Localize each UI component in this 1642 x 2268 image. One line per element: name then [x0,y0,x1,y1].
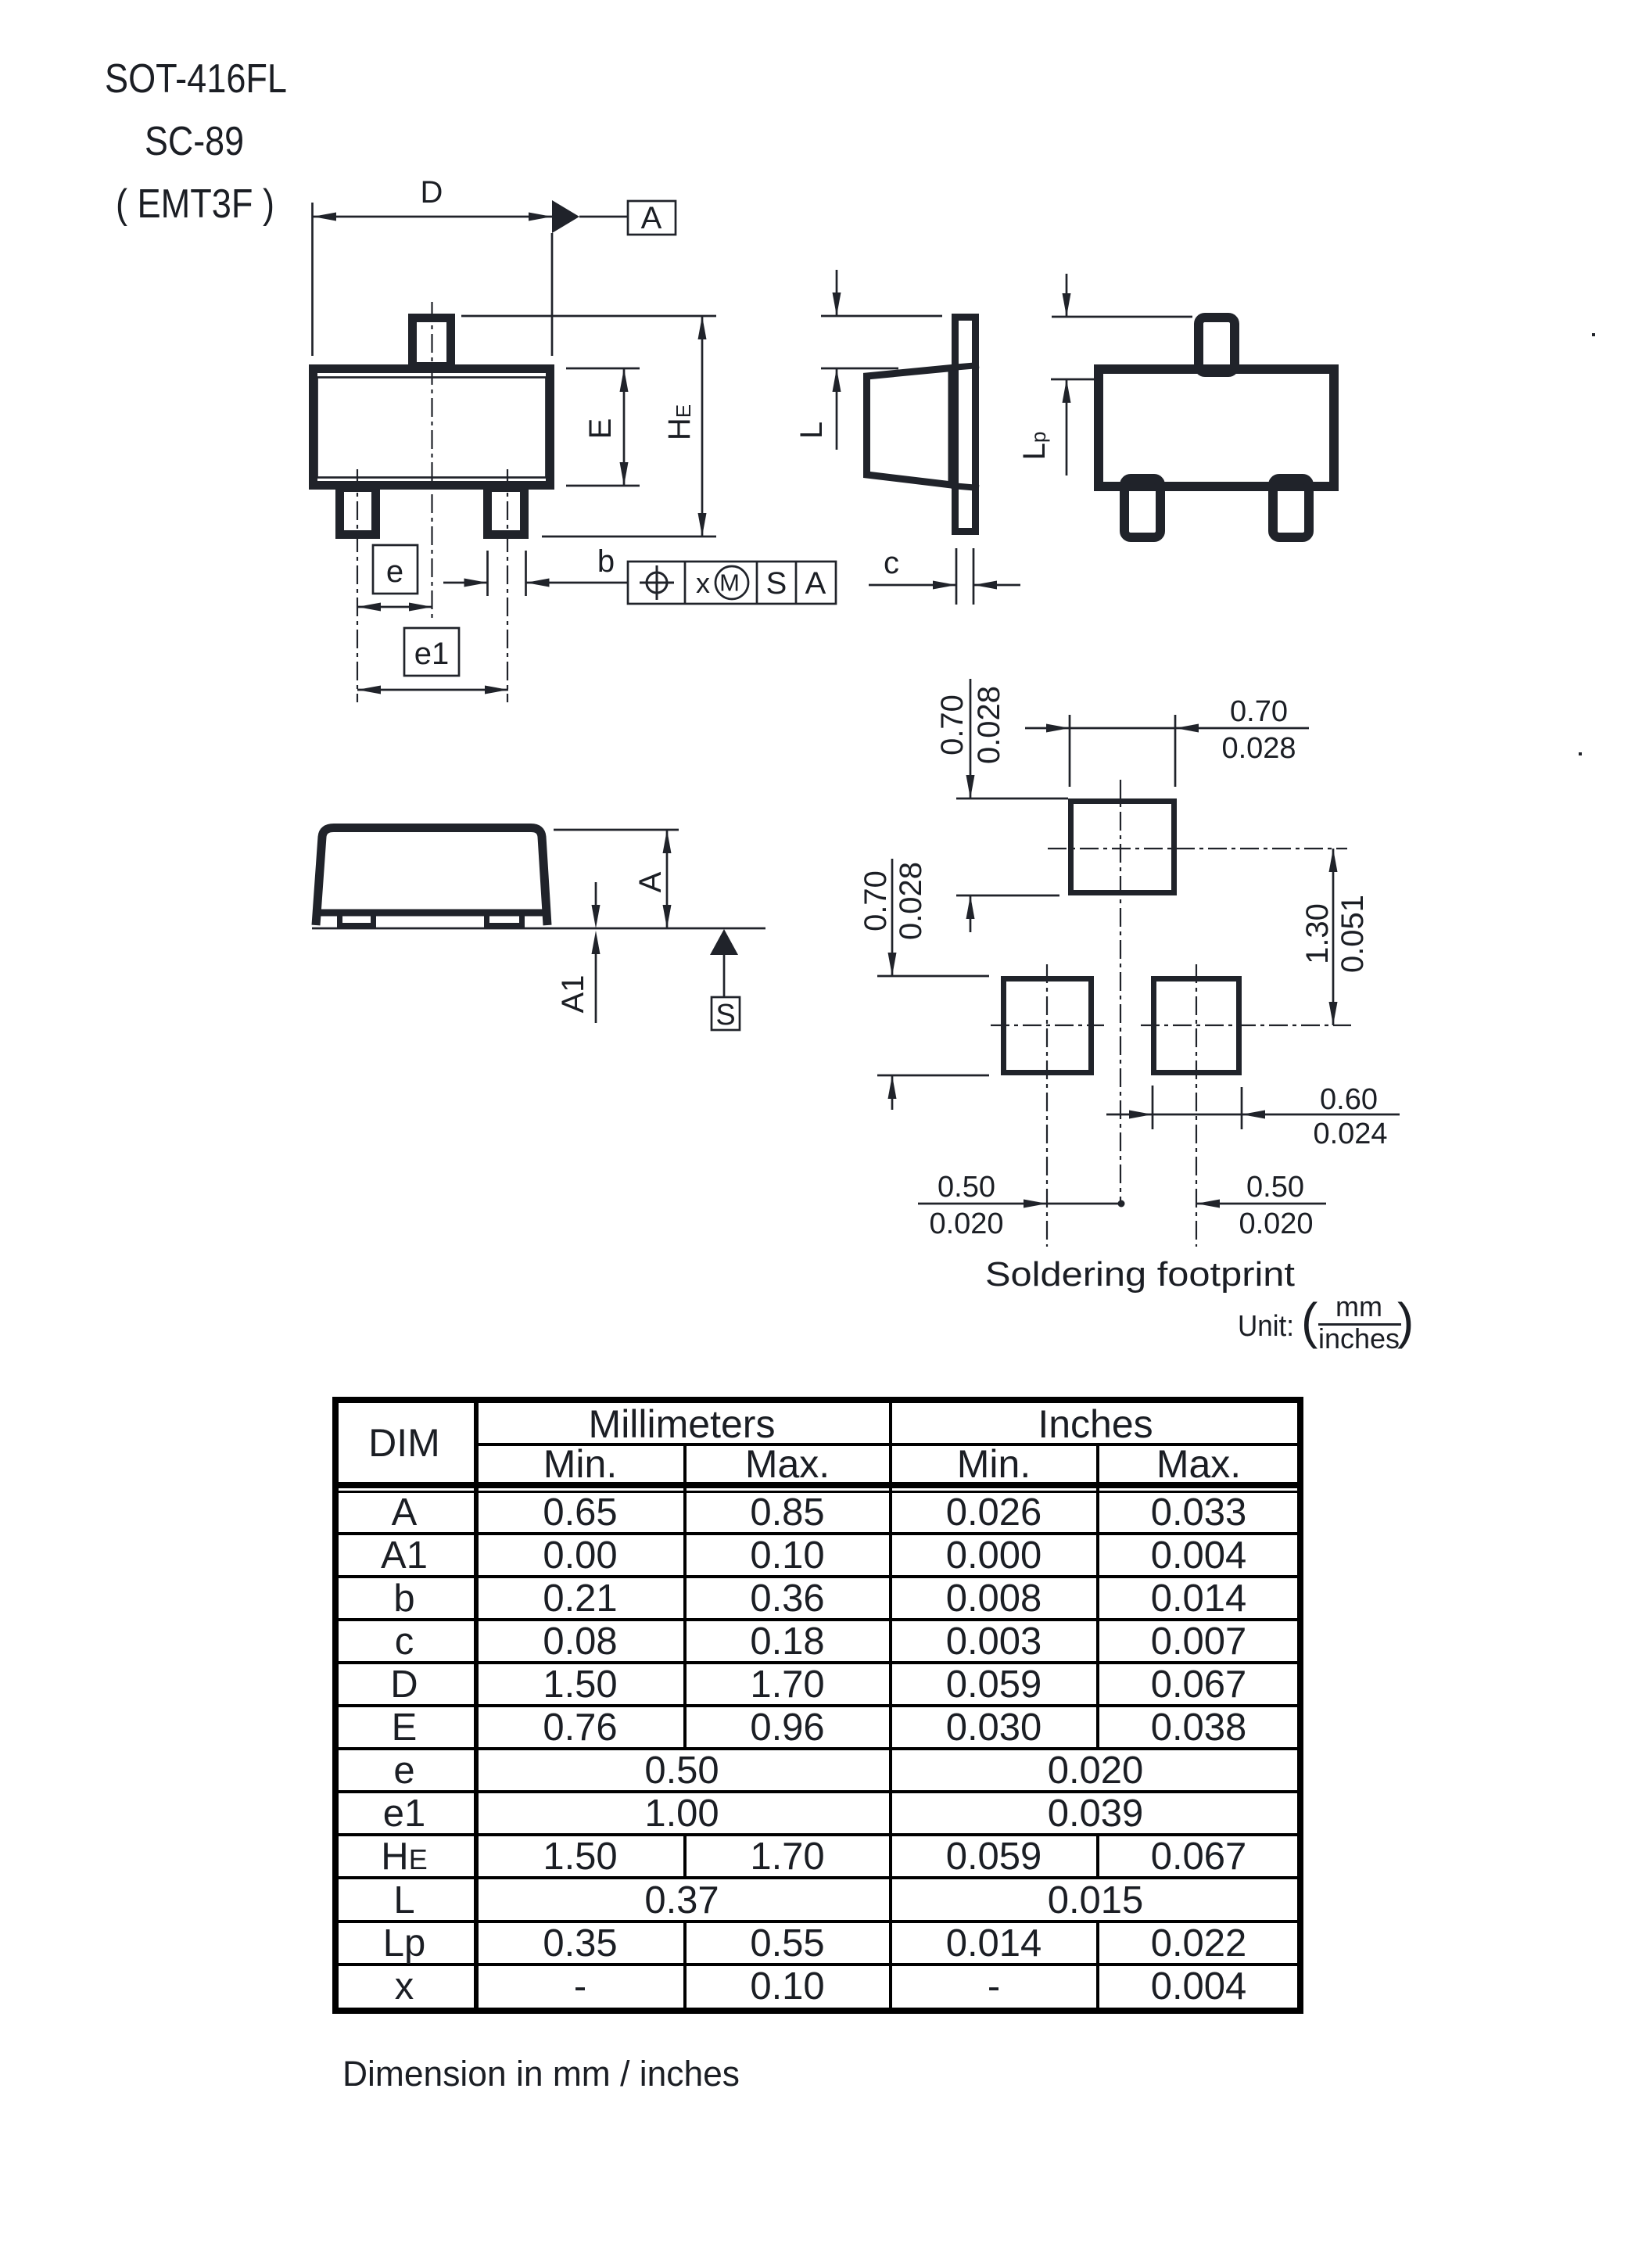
svg-text:A: A [805,566,826,601]
svg-text:0.37: 0.37 [644,1879,719,1922]
svg-text:Max.: Max. [1156,1442,1241,1486]
svg-text:0.00: 0.00 [543,1534,617,1577]
svg-text:0.007: 0.007 [1151,1620,1247,1663]
svg-text:1.70: 1.70 [750,1836,824,1878]
svg-text:0.038: 0.038 [1151,1706,1247,1749]
svg-text:0.70: 0.70 [935,694,970,755]
svg-text:0.020: 0.020 [1239,1208,1313,1240]
svg-text:S: S [766,566,787,601]
svg-text:Unit:: Unit: [1238,1310,1294,1343]
svg-text:L: L [794,422,829,439]
svg-text:b: b [597,544,615,579]
svg-text:1.70: 1.70 [750,1663,824,1706]
svg-text:b: b [393,1577,414,1620]
svg-text:Min.: Min. [543,1442,617,1486]
svg-text:SOT-416FL: SOT-416FL [105,56,287,102]
svg-text:e1: e1 [414,637,450,671]
svg-text:Millimeters: Millimeters [589,1402,776,1446]
svg-text:0.030: 0.030 [946,1706,1042,1749]
svg-text:A: A [392,1491,418,1534]
svg-text:0.059: 0.059 [946,1663,1042,1706]
svg-text:0.014: 0.014 [1151,1577,1247,1620]
svg-text:0.067: 0.067 [1151,1663,1247,1706]
svg-text:0.76: 0.76 [543,1706,617,1749]
svg-text:DIM: DIM [368,1421,440,1465]
svg-text:0.028: 0.028 [1221,732,1296,765]
svg-text:0.50: 0.50 [644,1749,719,1792]
svg-text:E: E [392,1706,418,1749]
svg-text:0.70: 0.70 [1230,695,1288,728]
svg-text:-: - [988,1965,1000,2008]
svg-text:0.35: 0.35 [543,1922,617,1965]
svg-text:0.026: 0.026 [946,1491,1042,1534]
svg-text:0.60: 0.60 [1320,1083,1378,1116]
svg-text:D: D [390,1663,418,1706]
svg-text:0.18: 0.18 [750,1620,824,1663]
svg-text:0.000: 0.000 [946,1534,1042,1577]
svg-text:e: e [393,1749,414,1792]
svg-text:1.50: 1.50 [543,1663,617,1706]
svg-text:0.004: 0.004 [1151,1534,1247,1577]
svg-text:L: L [393,1879,414,1922]
svg-text:0.022: 0.022 [1151,1922,1247,1965]
svg-text:c: c [395,1620,414,1663]
svg-text:0.50: 0.50 [938,1171,995,1204]
svg-text:0.028: 0.028 [972,686,1006,764]
svg-text:0.028: 0.028 [894,862,928,940]
svg-text:mm: mm [1335,1290,1382,1322]
svg-text:0.36: 0.36 [750,1577,824,1620]
svg-text:A1: A1 [381,1534,428,1577]
svg-text:E: E [583,418,618,440]
svg-text:(: ( [1301,1293,1318,1349]
svg-text:HE: HE [662,404,697,440]
svg-text:0.50: 0.50 [1246,1171,1304,1204]
svg-text:0.020: 0.020 [1048,1749,1144,1792]
svg-text:0.96: 0.96 [750,1706,824,1749]
svg-text:0.65: 0.65 [543,1491,617,1534]
svg-text:S: S [715,999,735,1032]
svg-text:A: A [641,201,662,235]
svg-text:0.014: 0.014 [946,1922,1042,1965]
svg-text:SC-89: SC-89 [145,119,244,164]
svg-text:0.10: 0.10 [750,1965,824,2008]
svg-text:M: M [719,569,740,597]
svg-text:A: A [633,871,668,892]
svg-text:0.039: 0.039 [1048,1793,1144,1835]
svg-text:0.85: 0.85 [750,1491,824,1534]
svg-text:0.004: 0.004 [1151,1965,1247,2008]
svg-text:0.020: 0.020 [929,1208,1003,1240]
svg-text:Dimension in mm / inches: Dimension in mm / inches [342,2054,740,2094]
svg-text:( EMT3F ): ( EMT3F ) [116,181,274,227]
svg-text:inches: inches [1318,1322,1400,1355]
svg-text:0.015: 0.015 [1048,1879,1144,1922]
svg-text:Max.: Max. [745,1442,830,1486]
svg-text:0.051: 0.051 [1335,895,1370,973]
svg-text:0.059: 0.059 [946,1836,1042,1878]
svg-text:x: x [696,567,710,599]
svg-text:1.00: 1.00 [644,1793,719,1835]
svg-text:-: - [574,1965,586,2008]
svg-text:e1: e1 [383,1793,426,1835]
svg-text:Lp: Lp [383,1922,426,1965]
svg-text:1.30: 1.30 [1300,903,1335,964]
svg-text:0.067: 0.067 [1151,1836,1247,1878]
svg-text:e: e [386,554,403,589]
svg-text:D: D [421,175,443,210]
svg-text:Min.: Min. [957,1442,1031,1486]
svg-text:0.21: 0.21 [543,1577,617,1620]
svg-text:): ) [1397,1293,1414,1349]
svg-text:HE: HE [381,1836,427,1878]
svg-text:1.50: 1.50 [543,1836,617,1878]
svg-text:Lp: Lp [1017,432,1052,461]
svg-text:0.10: 0.10 [750,1534,824,1577]
svg-text:0.55: 0.55 [750,1922,824,1965]
svg-text:x: x [395,1965,414,2008]
svg-text:c: c [884,546,899,580]
svg-text:0.008: 0.008 [946,1577,1042,1620]
svg-text:0.003: 0.003 [946,1620,1042,1663]
svg-text:0.08: 0.08 [543,1620,617,1663]
svg-text:A1: A1 [556,975,590,1014]
svg-text:Soldering footprint: Soldering footprint [985,1255,1295,1294]
svg-text:0.033: 0.033 [1151,1491,1247,1534]
svg-text:0.024: 0.024 [1313,1118,1387,1150]
svg-text:Inches: Inches [1038,1402,1153,1446]
svg-text:0.70: 0.70 [859,870,893,931]
